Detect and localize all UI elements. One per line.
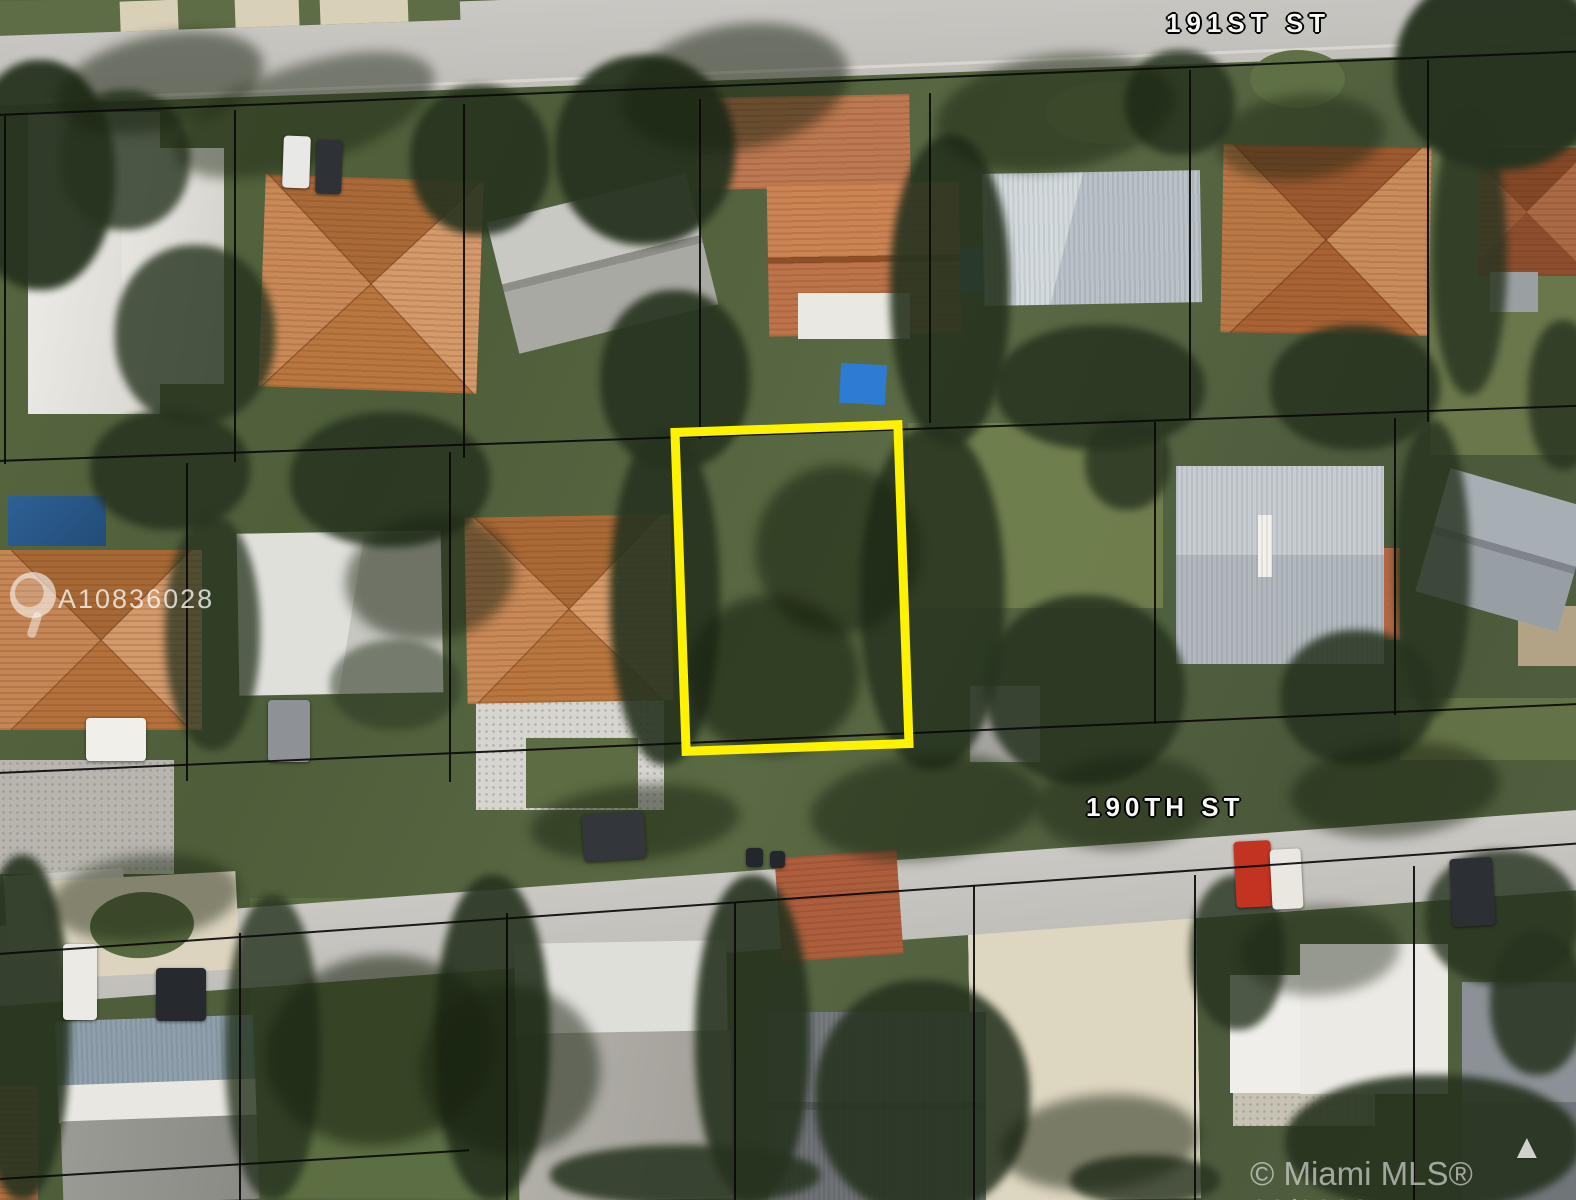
- aerial-photo: 191ST ST 190TH ST A10836028 © Miami MLS®…: [0, 0, 1576, 1200]
- north-arrow-icon: ▲: [1510, 1128, 1544, 1167]
- mls-logo-icon: [10, 572, 56, 618]
- watermark-layer: A10836028 © Miami MLS® 03/2020 ▲: [0, 0, 1576, 1200]
- listing-id-watermark: A10836028: [58, 584, 214, 615]
